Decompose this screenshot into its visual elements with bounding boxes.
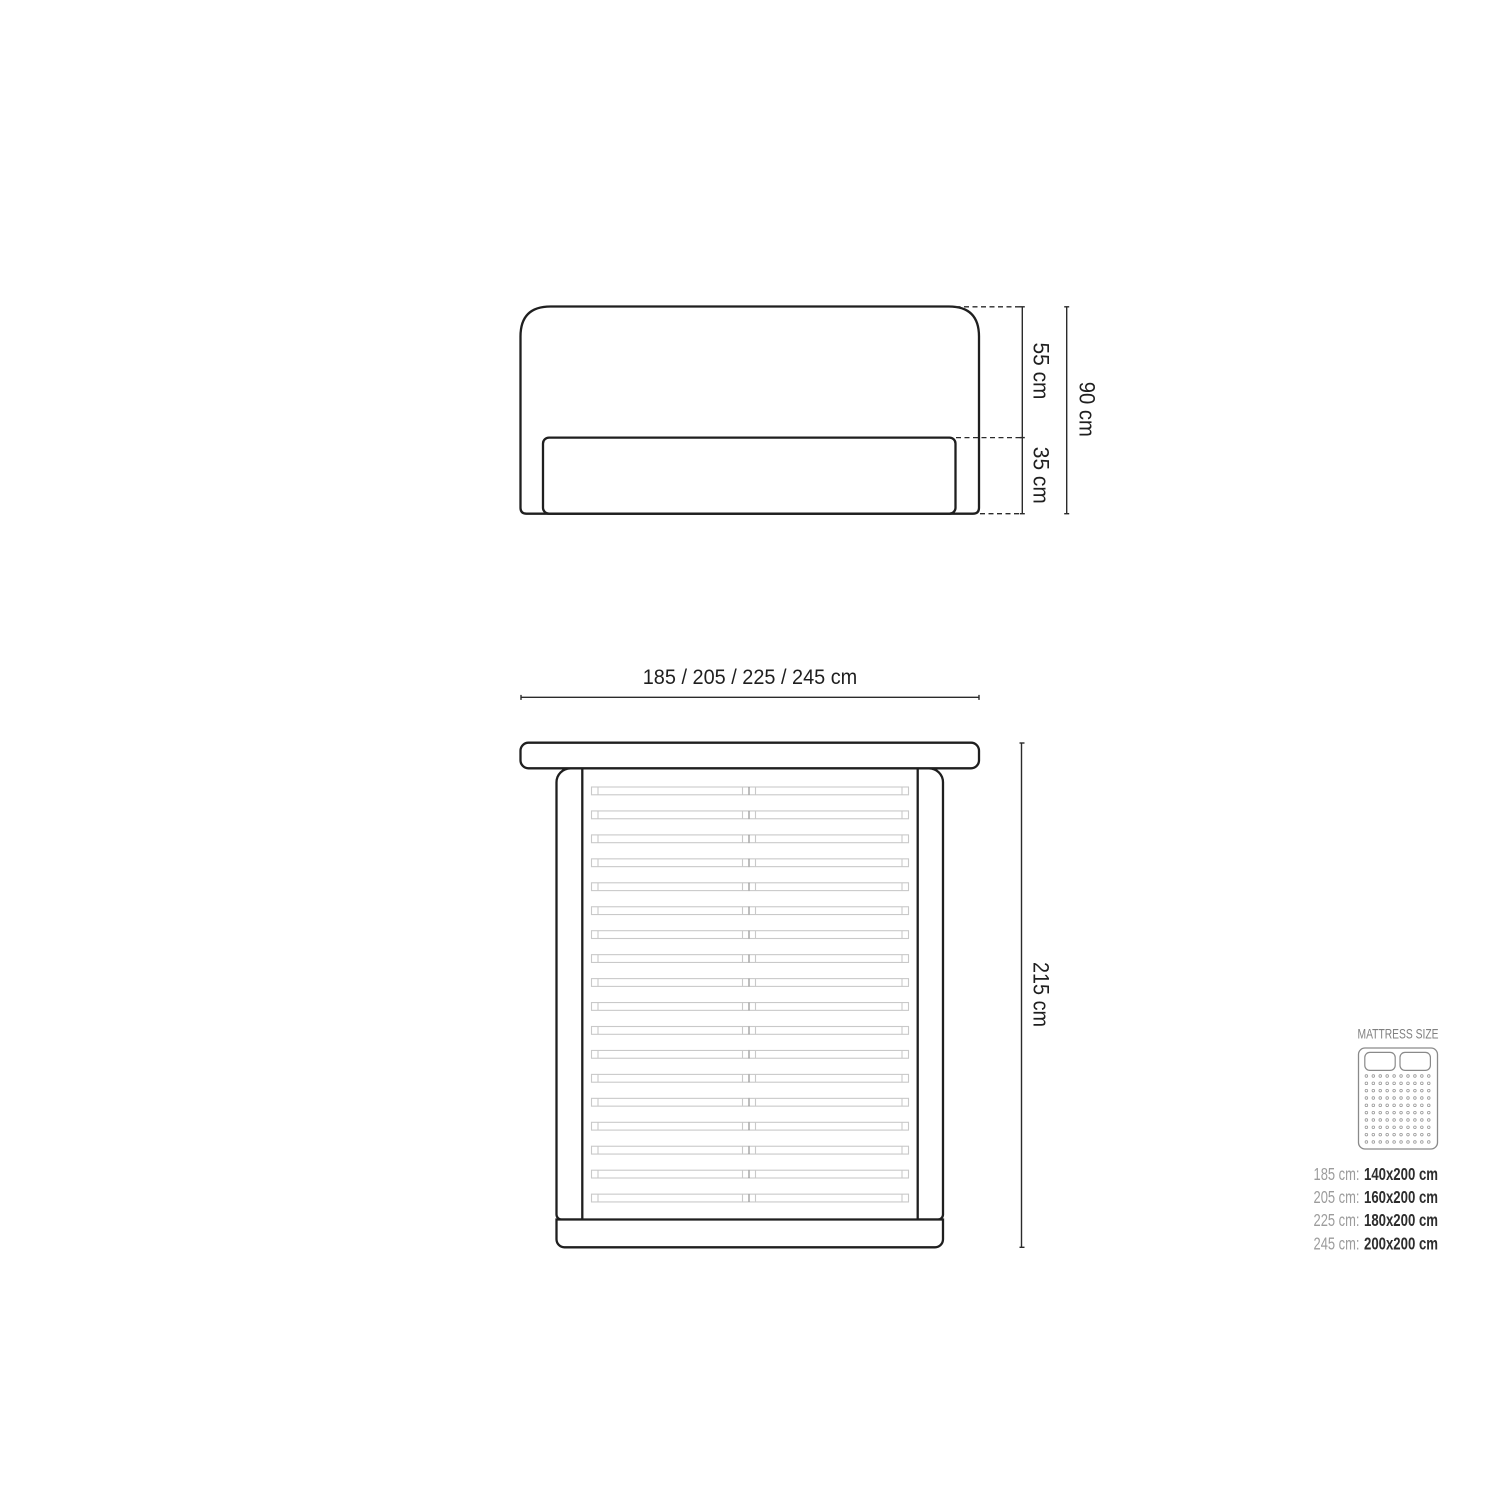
- svg-text:55 cm: 55 cm: [1029, 343, 1054, 400]
- svg-text:205 cm:: 205 cm:: [1314, 1187, 1360, 1207]
- svg-text:215 cm: 215 cm: [1029, 962, 1054, 1027]
- svg-text:185 / 205 / 225 / 245 cm: 185 / 205 / 225 / 245 cm: [643, 665, 858, 689]
- svg-text:160x200 cm: 160x200 cm: [1364, 1187, 1438, 1207]
- svg-text:90 cm: 90 cm: [1075, 382, 1100, 437]
- svg-text:185 cm:: 185 cm:: [1314, 1164, 1360, 1184]
- svg-text:MATTRESS SIZE: MATTRESS SIZE: [1358, 1027, 1439, 1042]
- svg-text:180x200 cm: 180x200 cm: [1364, 1210, 1438, 1230]
- svg-text:140x200 cm: 140x200 cm: [1364, 1164, 1438, 1184]
- svg-text:200x200 cm: 200x200 cm: [1364, 1233, 1438, 1253]
- svg-text:35 cm: 35 cm: [1029, 447, 1054, 504]
- svg-text:245 cm:: 245 cm:: [1314, 1233, 1360, 1253]
- svg-text:225 cm:: 225 cm:: [1314, 1210, 1360, 1230]
